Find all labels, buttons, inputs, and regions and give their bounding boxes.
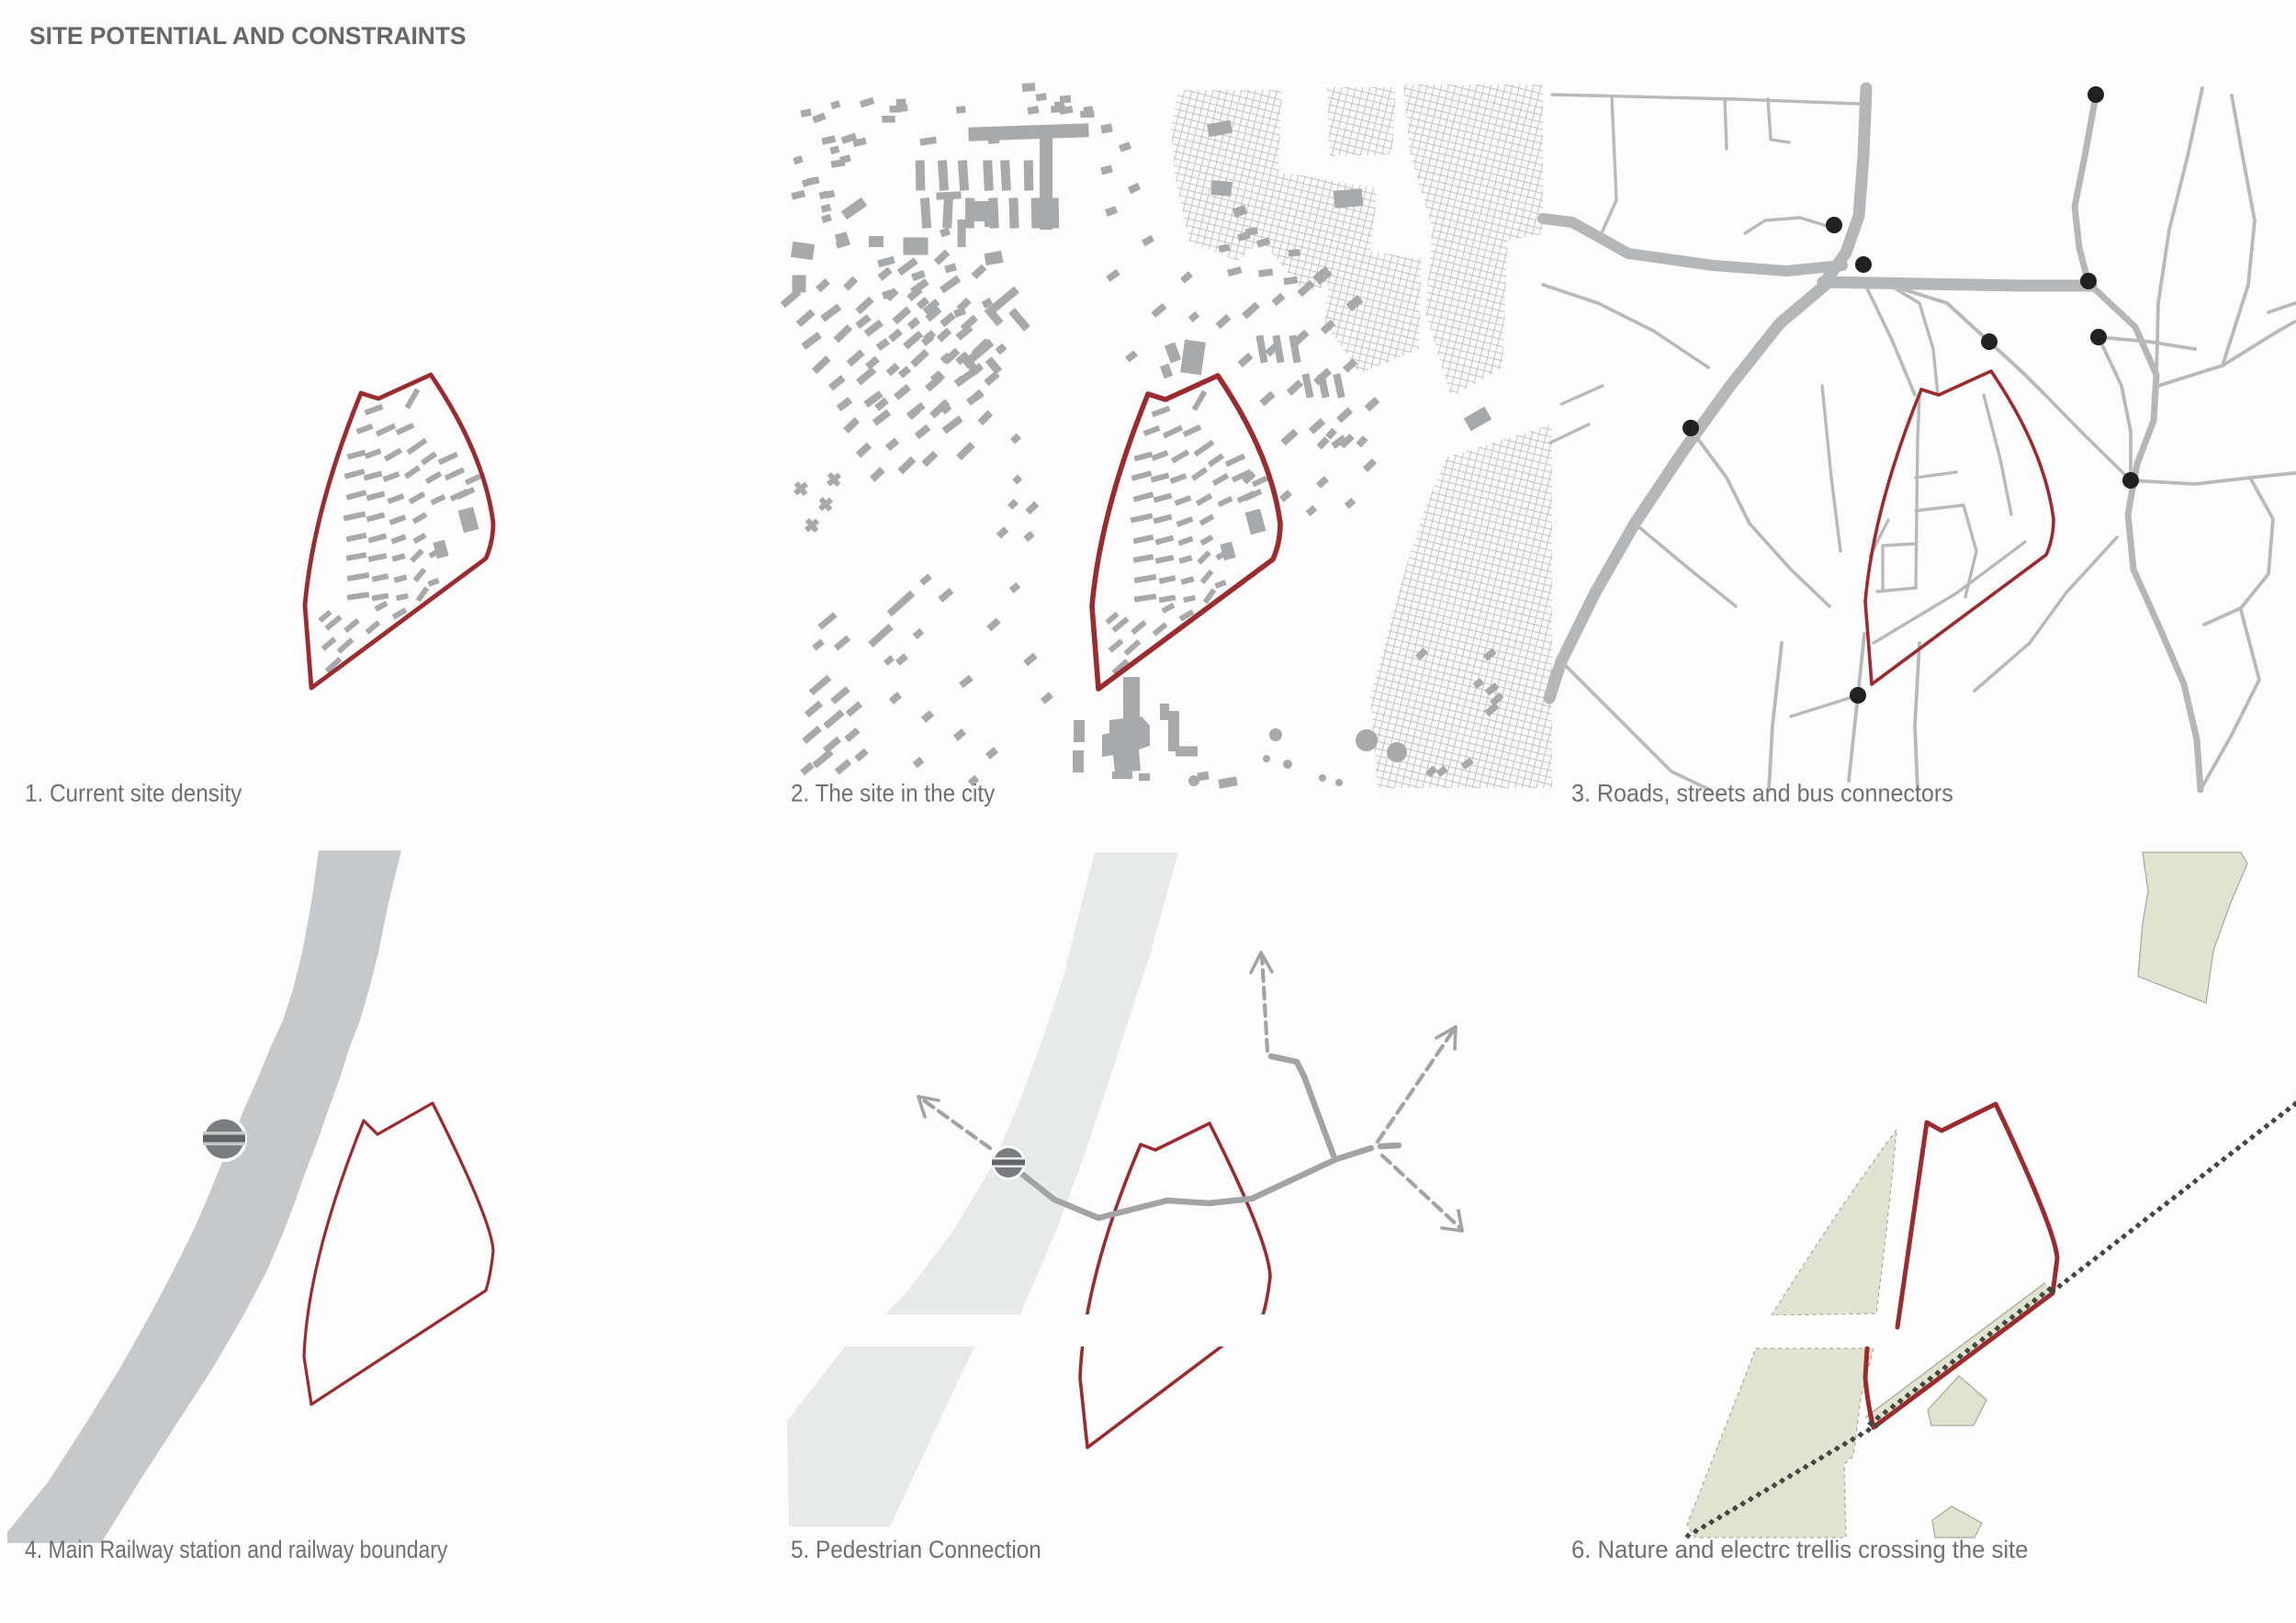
svg-text:1. Current site density: 1. Current site density [25,780,242,806]
svg-text:4. Main Railway station and ra: 4. Main Railway station and railway boun… [25,1536,448,1563]
svg-text:3. Roads, streets and bus conn: 3. Roads, streets and bus connectors [1571,779,1953,807]
svg-text:2. The site in the city: 2. The site in the city [791,780,995,806]
svg-text:5. Pedestrian Connection: 5. Pedestrian Connection [791,1537,1041,1563]
svg-text:SITE POTENTIAL AND CONSTRAINTS: SITE POTENTIAL AND CONSTRAINTS [29,22,467,50]
svg-text:6. Nature and electrc trellis: 6. Nature and electrc trellis crossing t… [1571,1535,2028,1563]
